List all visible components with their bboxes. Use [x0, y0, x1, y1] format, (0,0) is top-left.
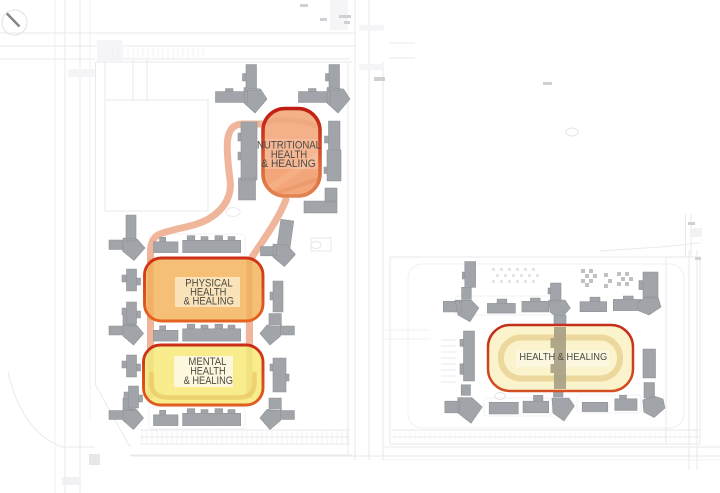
svg-text:& HEALING: & HEALING: [261, 158, 315, 170]
svg-text:& HEALING: & HEALING: [184, 375, 233, 387]
svg-text:& HEALING: & HEALING: [184, 296, 234, 308]
svg-text:HEALTH & HEALING: HEALTH & HEALING: [519, 351, 607, 363]
